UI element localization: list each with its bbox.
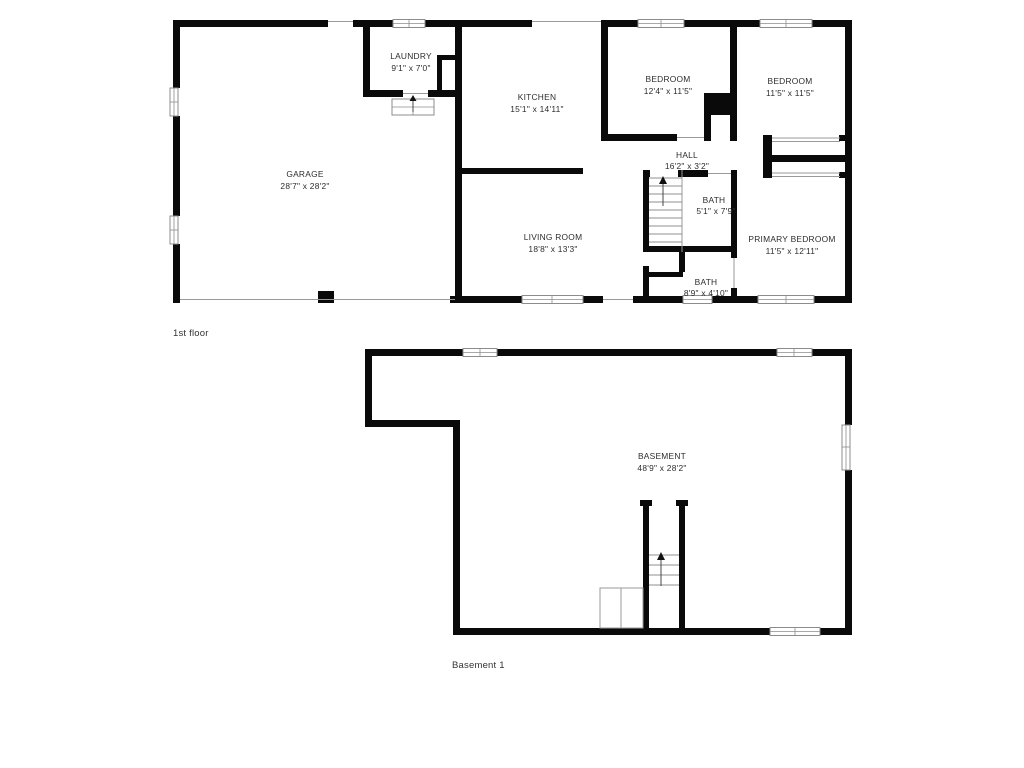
up-arrow-icon	[659, 176, 667, 206]
bedroom1-label: BEDROOM	[645, 74, 690, 84]
basement-stairs-icon	[600, 552, 679, 628]
bedroom1-dims: 12'4" x 11'5"	[644, 86, 693, 96]
first-floor-plan: GARAGE 28'7" x 28'2" LAUNDRY 9'1" x 7'0"…	[170, 20, 852, 340]
bedroom2-dims: 11'5" x 11'5"	[766, 88, 814, 98]
window	[777, 349, 812, 357]
bath1-label: BATH	[703, 195, 726, 205]
basement-labels: BASEMENT 48'9" x 28'2"	[637, 451, 686, 473]
living-room-label: LIVING ROOM	[524, 232, 583, 242]
first-floor-windows	[170, 20, 814, 304]
first-floor-stairs-icon	[649, 170, 682, 252]
living-room-dims: 18'8" x 13'3"	[528, 244, 577, 254]
floorplan-page: GARAGE 28'7" x 28'2" LAUNDRY 9'1" x 7'0"…	[0, 0, 1024, 768]
primary-bedroom-label: PRIMARY BEDROOM	[748, 234, 835, 244]
up-arrow-icon	[657, 552, 665, 586]
window	[170, 216, 178, 244]
laundry-label: LAUNDRY	[390, 51, 432, 61]
window	[638, 20, 684, 28]
basement-room-dims: 48'9" x 28'2"	[637, 463, 686, 473]
garage-dims: 28'7" x 28'2"	[280, 181, 329, 191]
window	[170, 88, 178, 116]
window	[770, 628, 820, 636]
window	[842, 425, 850, 470]
primary-bedroom-dims: 11'5" x 12'11"	[766, 246, 819, 256]
hall-label: HALL	[676, 150, 698, 160]
basement-plan: BASEMENT 48'9" x 28'2" Basement 1	[365, 349, 852, 672]
bath1-dims: 5'1" x 7'9"	[696, 206, 735, 216]
first-floor-title: 1st floor	[173, 328, 209, 339]
hall-dims: 16'2" x 3'2"	[665, 161, 709, 171]
floorplan-svg: GARAGE 28'7" x 28'2" LAUNDRY 9'1" x 7'0"…	[0, 0, 1024, 768]
window	[393, 20, 425, 28]
bath2-dims: 8'9" x 4'10"	[684, 288, 728, 298]
bedroom2-label: BEDROOM	[767, 76, 812, 86]
laundry-dims: 9'1" x 7'0"	[391, 63, 430, 73]
entry-steps-icon	[392, 95, 434, 115]
first-floor-door-openings	[180, 22, 840, 300]
bath2-label: BATH	[695, 277, 718, 287]
window	[760, 20, 812, 28]
kitchen-label: KITCHEN	[518, 92, 557, 102]
window	[758, 296, 814, 304]
garage-label: GARAGE	[286, 169, 323, 179]
first-floor-walls	[173, 20, 852, 303]
basement-title: Basement 1	[452, 660, 505, 671]
window	[522, 296, 583, 304]
basement-windows	[463, 349, 850, 636]
kitchen-dims: 15'1" x 14'11"	[510, 104, 563, 114]
basement-walls	[365, 349, 852, 635]
basement-room-label: BASEMENT	[638, 451, 686, 461]
window	[463, 349, 497, 357]
